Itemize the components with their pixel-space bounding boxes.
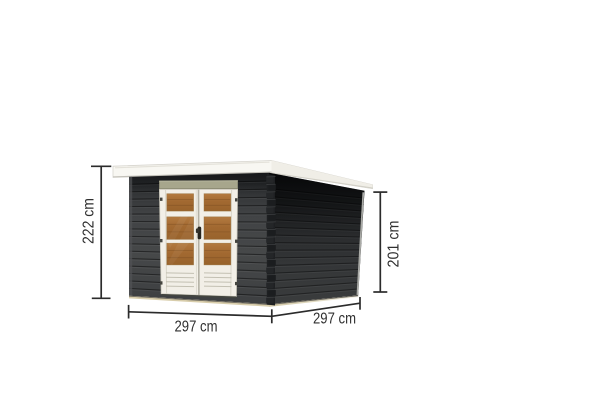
svg-text:297 cm: 297 cm [175, 318, 218, 335]
svg-text:201 cm: 201 cm [386, 221, 403, 268]
svg-text:297 cm: 297 cm [313, 311, 356, 328]
svg-text:222 cm: 222 cm [81, 198, 98, 244]
